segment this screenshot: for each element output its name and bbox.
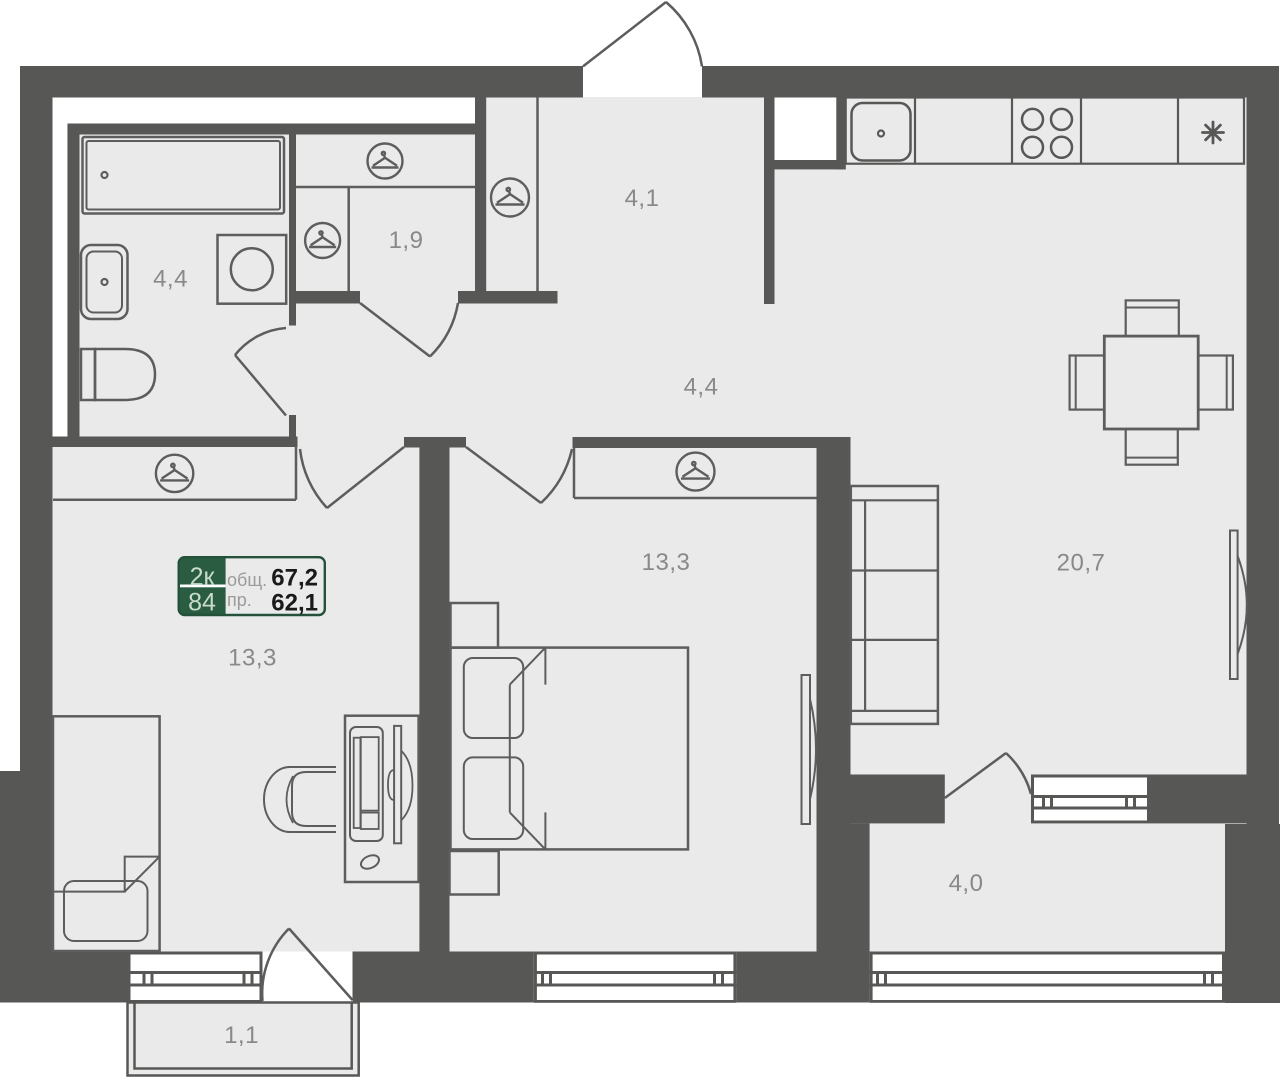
- svg-text:2к: 2к: [190, 563, 216, 591]
- svg-text:1,1: 1,1: [224, 1022, 259, 1049]
- svg-text:4,1: 4,1: [625, 185, 660, 212]
- svg-text:1,9: 1,9: [389, 227, 424, 254]
- svg-text:62,1: 62,1: [271, 590, 318, 617]
- svg-text:13,3: 13,3: [642, 549, 691, 576]
- svg-text:4,4: 4,4: [153, 266, 188, 293]
- svg-text:84: 84: [188, 589, 216, 617]
- svg-text:общ.: общ.: [227, 570, 267, 590]
- svg-text:13,3: 13,3: [228, 645, 277, 672]
- svg-text:4,0: 4,0: [949, 870, 984, 897]
- svg-text:4,4: 4,4: [684, 374, 719, 401]
- svg-text:20,7: 20,7: [1057, 550, 1106, 577]
- svg-text:пр.: пр.: [227, 590, 252, 610]
- svg-text:67,2: 67,2: [271, 565, 318, 592]
